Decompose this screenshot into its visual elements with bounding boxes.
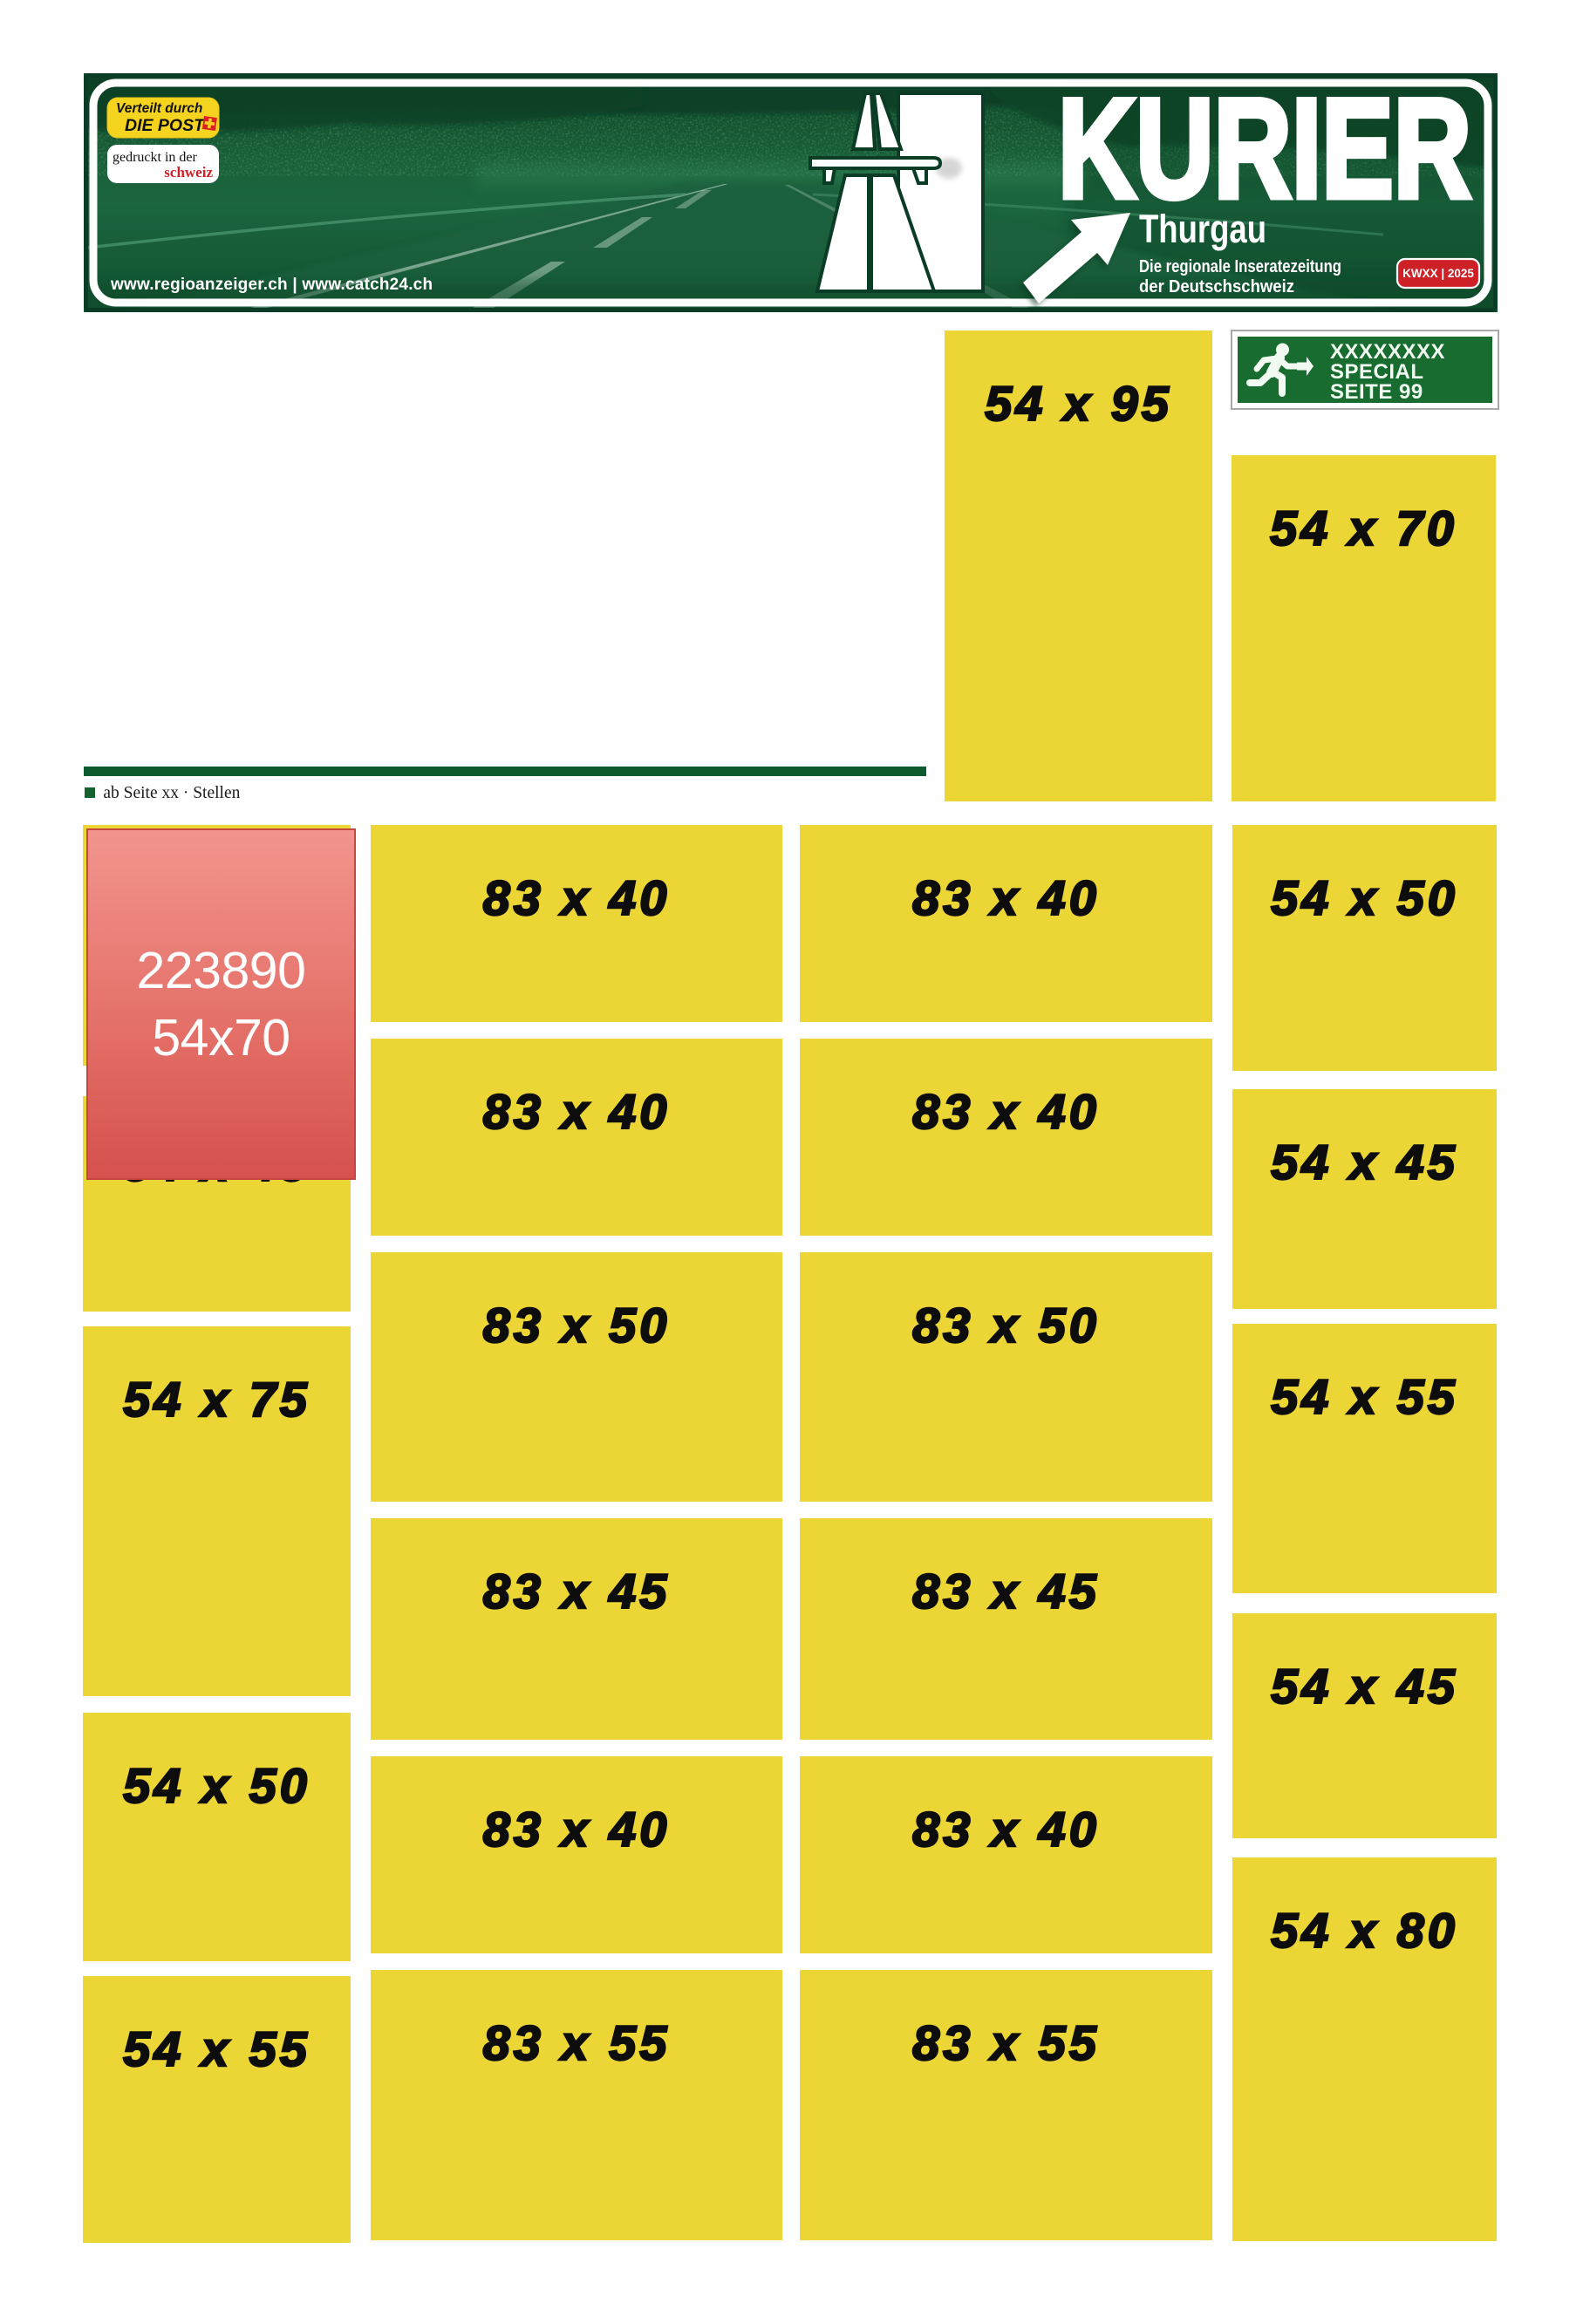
svg-text:schweiz: schweiz xyxy=(164,164,213,181)
svg-text:Die regionale Inseratezeitung: Die regionale Inseratezeitung xyxy=(1139,257,1341,276)
svg-text:www.regioanzeiger.ch | www.cat: www.regioanzeiger.ch | www.catch24.ch xyxy=(110,276,433,294)
svg-text:der Deutschschweiz: der Deutschschweiz xyxy=(1139,277,1294,296)
svg-text:gedruckt in der: gedruckt in der xyxy=(113,150,198,165)
svg-text:KWXX | 2025: KWXX | 2025 xyxy=(1402,267,1474,280)
svg-text:KURIER: KURIER xyxy=(1058,73,1471,228)
svg-text:Verteilt durch: Verteilt durch xyxy=(116,101,202,116)
svg-text:DIE POST: DIE POST xyxy=(125,116,206,135)
svg-text:Thurgau: Thurgau xyxy=(1139,207,1266,251)
